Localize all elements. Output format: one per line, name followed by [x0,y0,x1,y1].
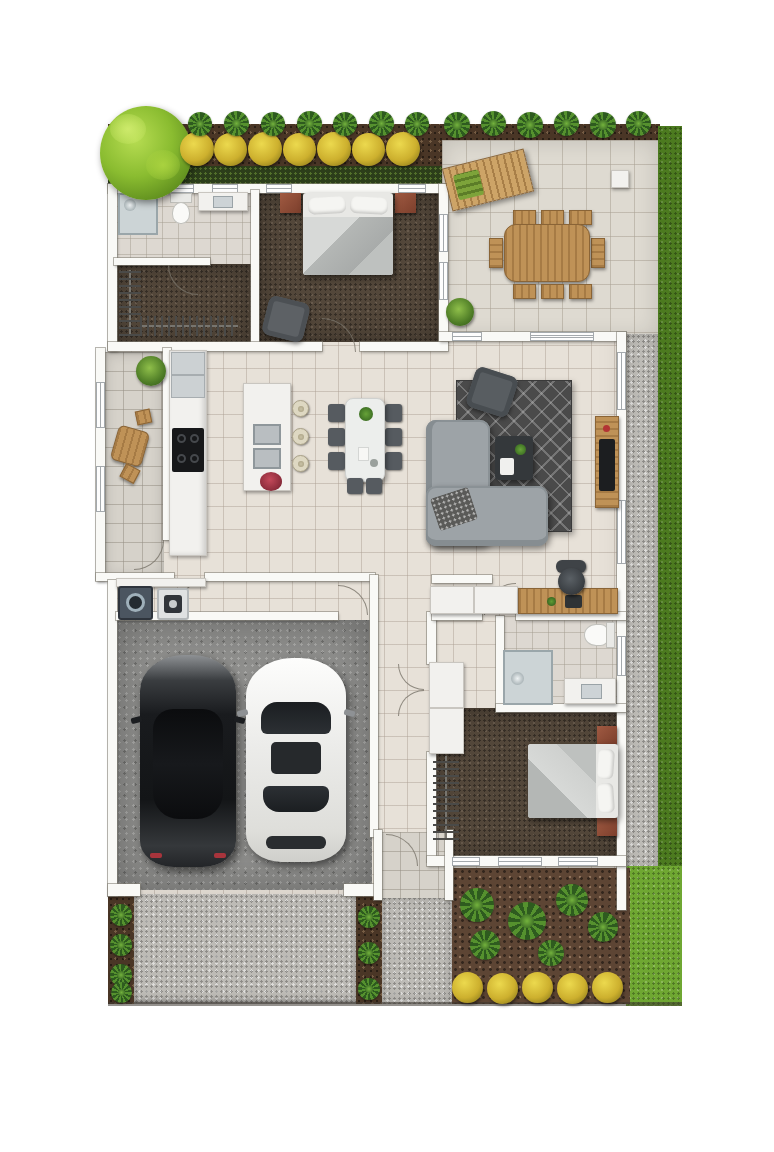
side-mirror [130,716,142,724]
table-dish [358,447,369,461]
linen-cupboard [429,662,464,754]
bedroom2-wardrobe-rack [433,756,459,840]
spiky-shrub [224,111,249,136]
gravel-side-path [626,334,658,868]
window-bed2-b [498,857,542,866]
bedroom2-nightstand-bottom [597,818,617,836]
tv-decor-dot [603,425,610,432]
garden-plant [538,940,564,966]
bathroom2-toilet-tank [606,622,615,648]
dining-chair [385,452,402,470]
patio-chair-end [489,238,503,268]
washing-machine [118,586,153,620]
coffee-table [495,436,533,480]
vanity-sink [581,684,602,699]
side-mirror [236,709,248,717]
coffee-table-tray [500,458,514,475]
white-sedan-windshield [261,702,331,734]
spiky-shrub [188,112,212,136]
yellow-bush [386,132,420,166]
window-bed1-a [266,184,292,193]
wall-garage-east [370,575,378,837]
duvet [528,744,596,818]
tree-highlight [110,114,146,144]
washer-door [126,593,145,612]
garage-door-pier-right [344,884,378,896]
patio-chair [569,284,592,299]
wall-bed1-south [360,342,448,351]
wall-west-upper [108,184,117,350]
television [599,439,615,491]
pillow [308,196,347,215]
spiky-shrub [554,111,579,136]
patio-plant [446,298,474,326]
window-bed1-east-b [439,262,448,300]
border-plant [358,906,380,928]
wall-ensuite-bed1 [251,190,259,344]
border-plant [110,934,132,956]
pillow [597,748,615,779]
yellow-bush [248,132,282,166]
dining-chair [385,428,402,446]
desk-plant [547,597,556,606]
fridge [171,352,205,398]
dining-table [345,398,385,482]
pillow [597,782,615,813]
outdoor-dining-table [504,224,590,282]
patio-sliding-door [530,332,594,341]
yellow-bush [317,132,351,166]
dark-sedan-glasshouse [153,709,223,819]
white-sedan-sunroof [271,742,321,774]
robe-rack-left [119,270,141,336]
burner [190,454,199,463]
wall-laundry-north-b [205,573,375,581]
spiky-shrub [444,112,470,138]
taillight [214,853,226,858]
dining-chair [347,478,363,494]
white-sedan-rear-window [263,786,329,812]
tv-unit [595,416,619,508]
garden-plant [508,902,546,940]
dryer [157,588,189,620]
garden-plant [556,884,588,916]
flower-bowl [260,472,282,491]
yellow-bush [352,133,385,166]
dryer-door-glass [169,600,177,608]
dark-sedan [140,655,236,867]
yellow-bush [522,972,553,1003]
window-bed2-a [452,857,480,866]
burner [177,434,186,443]
cooktop [172,428,204,472]
yellow-bush [487,973,518,1004]
patio-cube-table [611,170,629,188]
laptop [565,595,582,608]
dining-chair [385,404,402,422]
bedroom2-nightstand-top [597,726,617,744]
side-mirror [343,709,355,717]
front-path [382,896,452,1004]
spiky-shrub [261,112,285,136]
patio-chair-end [591,238,605,268]
spiky-shrub [333,112,357,136]
bar-stool [292,428,309,445]
patio-chair [541,284,564,299]
wall-ensuite-robe [114,258,210,265]
dining-chair [328,428,345,446]
window-courtyard-a [96,382,105,428]
white-sedan-rear-bumper [266,836,326,849]
dryer-door [164,595,182,613]
patio-chair [569,210,592,225]
wall-porch-west [374,830,382,900]
yellow-bush [214,133,247,166]
floor-plan-render [0,0,774,1152]
wall-bath2-south [496,704,626,712]
duvet [303,217,393,275]
spiky-shrub [590,112,616,138]
window-living-east-a [617,352,626,410]
master-bed [303,193,393,275]
pillow [350,196,389,215]
lounger-towel [453,169,485,201]
garden-plant [460,888,494,922]
driveway [134,894,356,1004]
island-sink [253,448,281,469]
yellow-bush [592,972,623,1003]
ensuite-vanity [198,192,248,211]
garage-door-pier-left [108,884,140,896]
window-bed1-east-a [439,214,448,252]
window-living-north [452,332,482,341]
spiky-shrub [369,111,394,136]
white-sedan [246,658,346,862]
window-bath2-east [617,636,626,676]
window-courtyard-b [96,466,105,512]
coffee-table-plant [515,444,526,455]
side-grass-strip [658,126,682,870]
patio-chair [541,210,564,225]
vanity-sink [213,196,233,208]
courtyard-plant [136,356,166,386]
site-edge [108,1002,682,1006]
garden-plant [470,930,500,960]
table-plant [359,407,373,421]
study-sideboard [430,586,518,614]
bar-stool [292,455,309,472]
border-plant [358,942,380,964]
robe-rack-bottom [140,316,238,336]
nightstand-left [280,193,301,213]
patio-chair [513,210,536,225]
bedroom2-bed [528,744,618,818]
kitchen-island [243,383,291,491]
island-sink [253,424,281,445]
patio-chair [513,284,536,299]
office-chair [558,568,585,595]
window-bed2-c [558,857,598,866]
burner [177,454,186,463]
taillight [150,853,162,858]
wall-study-south-a [432,575,492,583]
window-bed1-b [398,184,426,193]
bar-stool [292,400,309,417]
dining-chair [366,478,382,494]
window-living-east-b [617,500,626,564]
feature-tree [100,106,192,200]
side-mirror [233,716,245,724]
spiky-shrub [626,111,651,136]
bathroom2-toilet-bowl [584,624,608,646]
bathroom2-vanity [564,678,616,704]
shower-head-icon [511,672,524,685]
spiky-shrub [481,111,506,136]
shower-head-icon [124,199,136,211]
yellow-bush [283,133,316,166]
yellow-bush [557,973,588,1004]
ensuite-toilet-bowl [172,202,190,224]
burner [190,434,199,443]
nightstand-right [395,193,416,213]
tree-highlight [146,150,180,180]
bathroom2-shower [503,650,553,705]
front-lawn [626,866,682,1006]
spiky-shrub [405,112,429,136]
dining-chair [328,404,345,422]
yellow-bush [452,972,483,1003]
garden-plant [588,912,618,942]
spiky-shrub [297,111,322,136]
border-plant [358,978,380,1000]
dining-chair [328,452,345,470]
spiky-shrub [517,112,543,138]
border-plant [110,904,132,926]
yellow-bush [180,132,214,166]
wall-robe-south [108,342,322,351]
wall-garage-west [108,580,117,896]
table-bowl [370,459,378,467]
border-plant [111,982,132,1003]
